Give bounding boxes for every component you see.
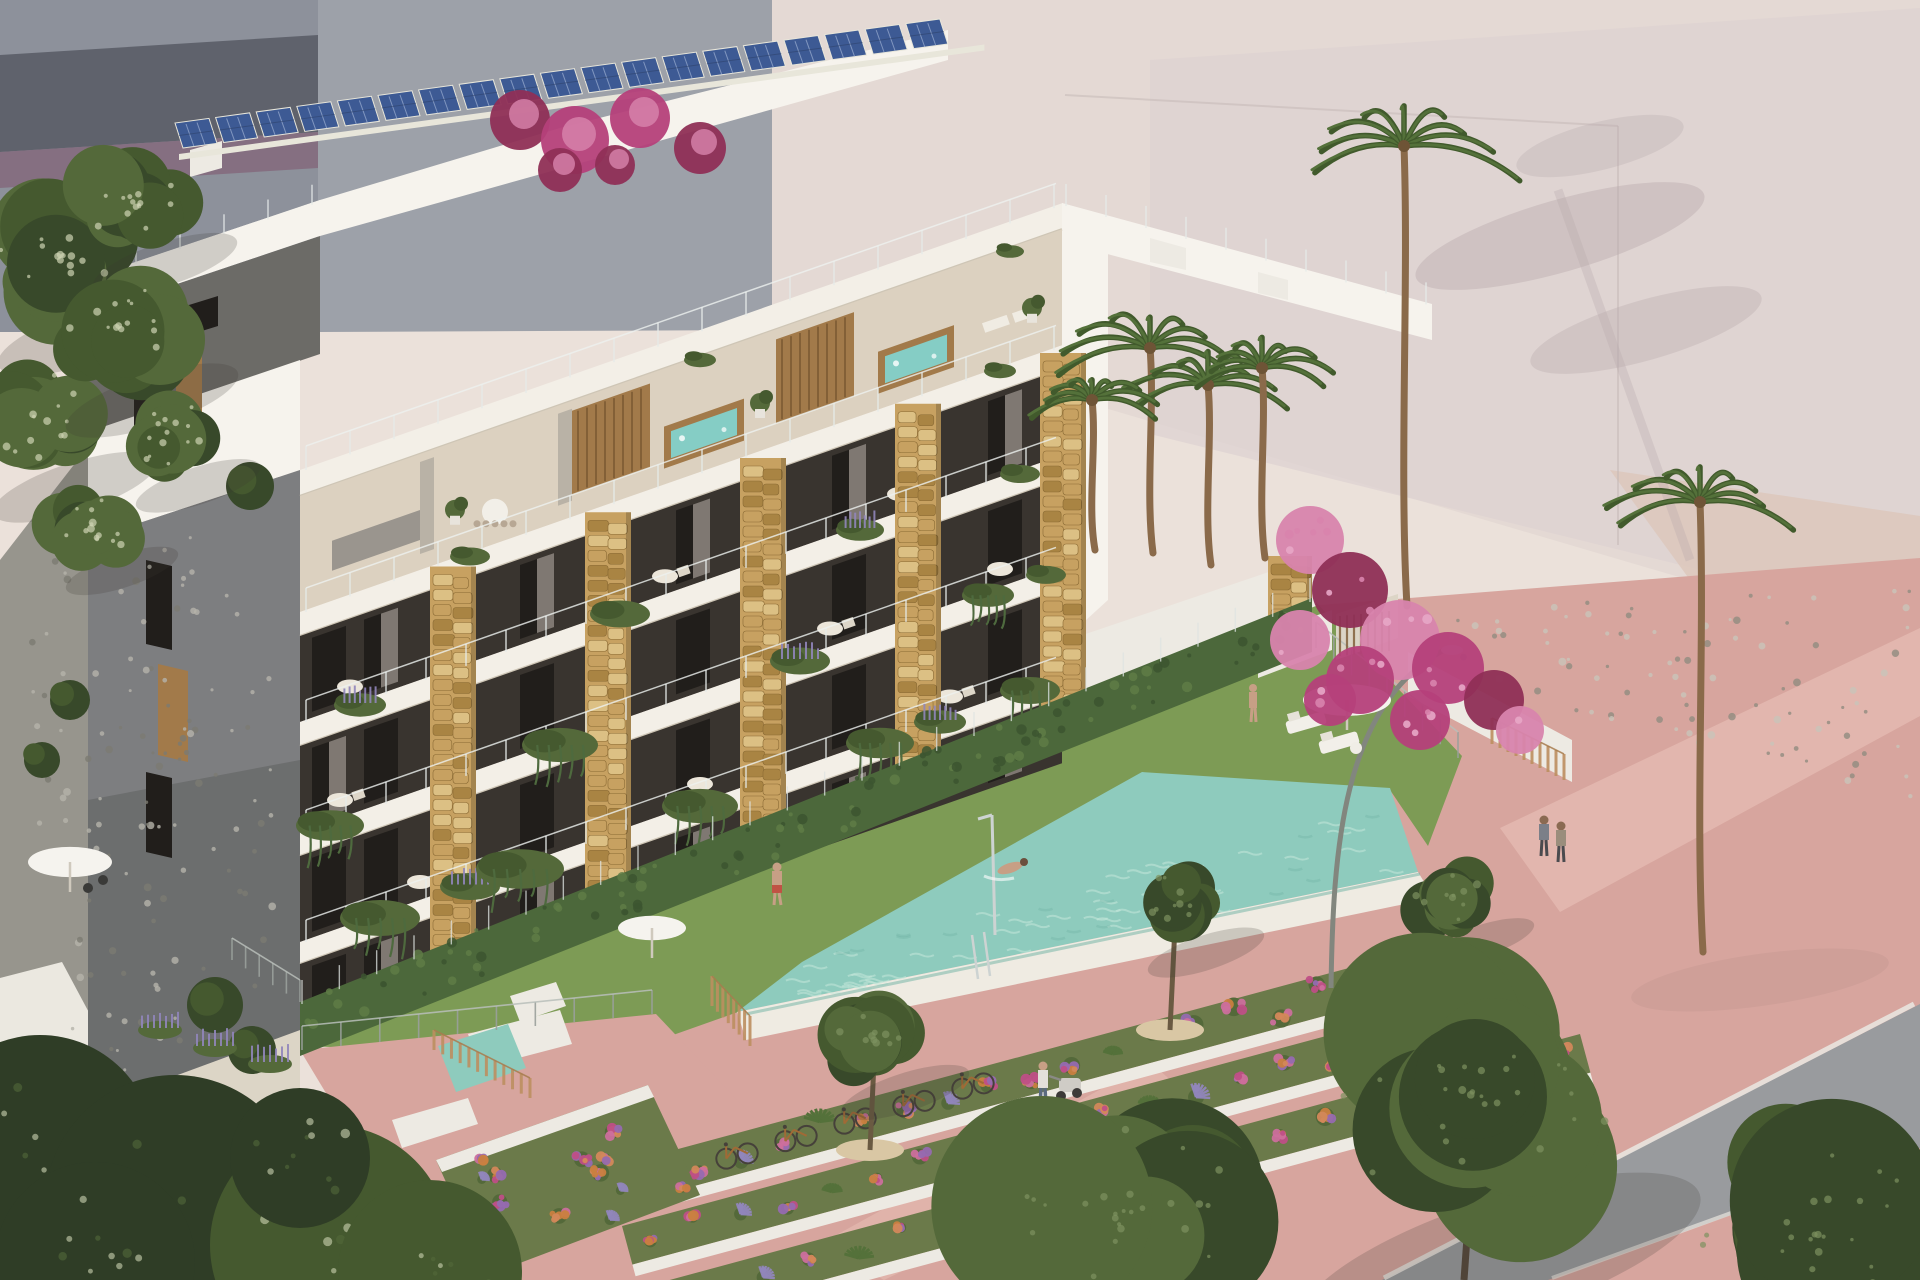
flowers [1319, 985, 1325, 991]
leaf-speckle [431, 1257, 436, 1262]
stone [588, 835, 608, 846]
flowers [788, 1203, 795, 1210]
leaf-speckle [113, 324, 120, 331]
gravel-speckle [141, 619, 146, 624]
gravel-speckle [171, 957, 178, 964]
leaf-speckle [1704, 1233, 1709, 1238]
flowers [1234, 1072, 1242, 1080]
stone [763, 634, 779, 645]
stone [608, 703, 624, 714]
leaf-speckle [13, 449, 17, 453]
leaf-speckle [135, 1254, 142, 1261]
stone [588, 820, 607, 831]
leaf-speckle [148, 455, 151, 458]
leaf-speckle [93, 308, 101, 316]
tree-canopy [137, 426, 180, 469]
stone [763, 679, 782, 690]
hedge-leaf [1252, 643, 1259, 650]
leaf-speckle [438, 1263, 443, 1268]
leaf-speckle [137, 204, 141, 208]
lavender-sprig [948, 1103, 960, 1104]
hedge-leaf [333, 999, 342, 1008]
leaf-speckle [75, 507, 78, 510]
hedge-leaf [1151, 700, 1155, 704]
stone [1063, 649, 1081, 660]
hedge-leaf [1094, 697, 1104, 707]
gravel-speckle [1564, 615, 1568, 619]
gravel-speckle [189, 536, 192, 539]
hedge-leaf [1088, 717, 1093, 722]
gravel-speckle [1794, 746, 1799, 751]
leaf-speckle [285, 1165, 289, 1169]
stone [1063, 559, 1078, 570]
leaf-speckle [860, 1014, 865, 1019]
bougainvillea [1390, 690, 1450, 750]
curtain [693, 499, 710, 579]
bougainvillea-bloom [1366, 607, 1374, 615]
leaf-speckle [13, 1083, 22, 1092]
gravel-speckle [1609, 716, 1614, 721]
leaf-speckle [1181, 1146, 1185, 1150]
stone [1063, 544, 1078, 555]
stone [1063, 664, 1080, 675]
pillar-shade [471, 567, 476, 967]
stone [918, 580, 934, 591]
leaf-speckle [308, 1132, 315, 1139]
bougainvillea-bloom [1369, 659, 1375, 665]
leaf-speckle [1031, 1197, 1036, 1202]
leaf-speckle [22, 1153, 28, 1159]
stone [763, 724, 782, 735]
gravel-speckle [1496, 628, 1502, 634]
stone [763, 694, 782, 705]
gravel-speckle [1686, 730, 1692, 736]
stone [453, 608, 473, 619]
gravel-speckle [1667, 660, 1672, 665]
gravel-speckle [269, 813, 274, 818]
flowers [551, 1216, 558, 1223]
lavender-top [760, 1267, 766, 1273]
stone [1043, 466, 1062, 477]
gravel-speckle [1567, 658, 1570, 661]
stone [433, 725, 454, 736]
gravel-speckle [1543, 629, 1548, 634]
hedge-leaf [448, 949, 454, 955]
gravel-speckle [129, 689, 132, 692]
curtain [849, 444, 866, 524]
hedge-leaf [1039, 737, 1049, 747]
stone [1063, 619, 1083, 630]
stone [433, 845, 454, 856]
tree-canopy [91, 305, 164, 378]
bougainvillea-bloom [1326, 590, 1332, 596]
leaf-speckle [870, 1036, 877, 1043]
stone [453, 848, 469, 859]
hedge-leaf [953, 778, 959, 784]
stone [453, 683, 471, 694]
leaf-speckle [1503, 1066, 1509, 1072]
gravel-speckle [1852, 761, 1859, 768]
leaf-speckle [1810, 1198, 1817, 1205]
stone [453, 743, 472, 754]
gravel-speckle [109, 947, 116, 954]
stone [918, 610, 933, 621]
gravel-speckle [183, 727, 186, 730]
leaf-speckle [419, 1253, 424, 1258]
person-leg [1255, 708, 1256, 722]
leaf-speckle [1869, 1265, 1873, 1269]
leaf-speckle [66, 324, 74, 332]
leaf-speckle [1877, 1169, 1882, 1174]
hedge-leaf [1182, 682, 1192, 692]
stone [608, 733, 628, 744]
hedge-leaf [553, 903, 561, 911]
hedge-leaf [690, 849, 697, 856]
stone [743, 796, 764, 807]
leaf-speckle [1043, 1203, 1046, 1206]
gravel-speckle [1704, 640, 1711, 647]
dining-chair [474, 520, 481, 527]
gravel-speckle [245, 725, 250, 730]
leaf-speckle [1459, 1158, 1466, 1165]
stone [763, 769, 781, 780]
leaf-speckle [1557, 1063, 1560, 1066]
palm-crown [1398, 140, 1410, 152]
curtain [381, 608, 398, 688]
flowers [602, 1156, 611, 1165]
leaf-speckle [887, 1041, 892, 1046]
hedge-leaf [474, 928, 478, 932]
hedge-leaf [855, 776, 859, 780]
gravel-speckle [1754, 703, 1758, 707]
stone [1063, 454, 1079, 465]
hedge-leaf [1063, 699, 1071, 707]
hedge-leaf [382, 982, 387, 987]
stone [433, 905, 453, 916]
leaf-speckle [1450, 873, 1455, 878]
stone [743, 721, 763, 732]
leaf-speckle [68, 252, 76, 260]
flowers [1102, 1106, 1108, 1112]
gravel-speckle [144, 900, 151, 907]
stone [763, 559, 781, 570]
leaf-speckle [190, 405, 194, 409]
gravel-speckle [233, 826, 239, 832]
hedge-leaf [652, 864, 657, 869]
hedge-leaf [1053, 708, 1062, 717]
gravel-speckle [189, 569, 194, 574]
stone [608, 658, 625, 669]
gravel-speckle [1624, 634, 1630, 640]
stone [588, 655, 610, 666]
leaf-speckle [253, 1140, 260, 1147]
leaf-speckle [1444, 893, 1448, 897]
gravel-speckle [187, 730, 194, 737]
gravel-speckle [1574, 708, 1578, 712]
flowers [582, 1158, 587, 1163]
bougainvillea-bloom [609, 149, 629, 169]
stone [608, 688, 624, 699]
gravel-speckle [160, 895, 167, 902]
gravel-speckle [122, 1018, 128, 1024]
gravel-speckle [1850, 687, 1857, 694]
gravel-speckle [1551, 604, 1558, 611]
leaf-speckle [331, 1186, 340, 1195]
leaf-speckle [1808, 1237, 1812, 1241]
leaf-speckle [331, 1268, 336, 1273]
leaf-speckle [1700, 1242, 1706, 1248]
leaf-speckle [172, 420, 179, 427]
hedge-leaf [733, 850, 742, 859]
gravel-speckle [1896, 745, 1899, 748]
leaf-speckle [89, 507, 94, 512]
gravel-speckle [195, 779, 203, 787]
gravel-speckle [1618, 631, 1623, 636]
stone [918, 415, 934, 426]
curtain [1005, 389, 1022, 469]
gravel-speckle [1672, 674, 1678, 680]
gravel-speckle [162, 678, 167, 683]
stone [433, 695, 451, 706]
gravel-speckle [253, 799, 256, 802]
stone [453, 803, 469, 814]
stone [918, 535, 938, 546]
leaf-speckle [32, 1134, 38, 1140]
hedge-leaf [797, 814, 807, 824]
leaf-speckle [1163, 876, 1167, 880]
gravel-speckle [88, 972, 94, 978]
leaf-speckle [1850, 1238, 1853, 1241]
gravel-speckle [1774, 716, 1782, 724]
gravel-speckle [1813, 642, 1819, 648]
gravel-speckle [92, 670, 99, 677]
leaf-speckle [54, 253, 61, 260]
leaf-speckle [1100, 1193, 1107, 1200]
bougainvillea-bloom [1422, 614, 1432, 624]
jacuzzi-foam [722, 427, 727, 432]
hedge-leaf [390, 965, 399, 974]
hedge-leaf [1014, 751, 1024, 761]
leaf-speckle [1181, 1225, 1189, 1233]
gravel-speckle [144, 883, 152, 891]
leaf-speckle [1117, 1225, 1125, 1233]
stone [743, 481, 762, 492]
gravel-speckle [260, 936, 267, 943]
leaf-speckle [1030, 1230, 1035, 1235]
hedge-leaf [617, 872, 627, 882]
gravel-speckle [1689, 716, 1695, 722]
leaf-speckle [152, 412, 156, 416]
hedge-leaf [840, 825, 848, 833]
leaf-speckle [186, 424, 190, 428]
leaf-speckle [135, 191, 141, 197]
leaf-speckle [1480, 1094, 1484, 1098]
gravel-speckle [157, 825, 161, 829]
stone [608, 853, 624, 864]
stone [588, 580, 608, 591]
gravel-speckle [1585, 611, 1591, 617]
stone [1043, 556, 1065, 567]
leaf-speckle [1421, 899, 1428, 906]
leaf-speckle [52, 373, 57, 378]
stone [763, 589, 782, 600]
leaf-speckle [863, 1037, 869, 1043]
gravel-speckle [1844, 777, 1851, 784]
gravel-speckle [242, 890, 248, 896]
lavender-top [1192, 1084, 1200, 1092]
hedge-leaf [1131, 704, 1136, 709]
leaf-speckle [167, 462, 171, 466]
stone [918, 670, 933, 681]
bougainvillea-bloom [1430, 680, 1437, 687]
gravel-speckle [1534, 687, 1541, 694]
gravel-speckle [45, 632, 49, 636]
hedge-leaf [1141, 666, 1152, 677]
stone [743, 691, 764, 702]
leaf-speckle [1783, 1219, 1790, 1226]
bougainvillea-bloom [1427, 667, 1432, 672]
stone [1063, 634, 1082, 645]
hedge-leaf [543, 906, 547, 910]
gravel-speckle [87, 828, 92, 833]
swimmer-head [1020, 858, 1028, 866]
palm-crown [1086, 394, 1098, 406]
stone [1043, 526, 1063, 537]
leaf-speckle [40, 237, 44, 241]
person-leg [1546, 840, 1547, 856]
gravel-speckle [184, 750, 189, 755]
stone [743, 496, 763, 507]
balcony-plant [985, 362, 1003, 372]
flowers [810, 1257, 816, 1263]
stone [588, 685, 607, 696]
balcony-plant [685, 351, 703, 361]
leaf-speckle [1082, 1201, 1088, 1207]
stone [743, 706, 765, 717]
flowers [778, 1204, 789, 1215]
leaf-speckle [108, 1253, 115, 1260]
gravel-speckle [151, 919, 156, 924]
leaf-speckle [1601, 1117, 1609, 1125]
gravel-speckle [1681, 692, 1687, 698]
stone [1063, 439, 1082, 450]
leaf-speckle [168, 201, 174, 207]
hedge-leaf [1130, 685, 1139, 694]
flowers [1311, 986, 1318, 993]
stone [918, 640, 936, 651]
stone [1063, 589, 1082, 600]
flowers [502, 1201, 509, 1208]
stone [743, 571, 763, 582]
gravel-speckle [1605, 631, 1609, 635]
leaf-speckle [341, 1129, 351, 1139]
stone [918, 625, 935, 636]
palm-trunk [1092, 400, 1095, 550]
leaf-speckle [57, 404, 61, 408]
stroller-wheel [1072, 1088, 1082, 1098]
stone [898, 517, 918, 528]
hedge-leaf [326, 988, 333, 995]
bougainvillea-bloom [562, 117, 596, 151]
stone [433, 740, 452, 751]
leaf-speckle [1167, 1200, 1174, 1207]
person-torso [1556, 830, 1566, 846]
hedge-leaf [734, 870, 739, 875]
gravel-speckle [1594, 675, 1600, 681]
gravel-speckle [1683, 630, 1687, 634]
leaf-speckle [83, 528, 88, 533]
stone [588, 535, 610, 546]
stone [898, 667, 920, 678]
leaf-speckle [1443, 1087, 1447, 1091]
leaf-speckle [1176, 888, 1184, 896]
leaf-speckle [195, 437, 203, 445]
leaf-speckle [1440, 1124, 1446, 1130]
leaf-speckle [43, 417, 51, 425]
stone [743, 526, 764, 537]
gravel-speckle [1733, 635, 1738, 640]
leaf-speckle [1, 1111, 7, 1117]
stone [453, 698, 471, 709]
person-leg [1563, 846, 1564, 862]
gravel-speckle [145, 801, 148, 804]
bougainvillea-bloom [1279, 650, 1284, 655]
leaf-speckle [1830, 1153, 1834, 1157]
leaf-speckle [1025, 1194, 1030, 1199]
leaf-speckle [1482, 1101, 1488, 1107]
hedge-leaf [466, 950, 472, 956]
gravel-speckle [225, 594, 229, 598]
stone [1291, 582, 1306, 593]
gravel-speckle [210, 688, 213, 691]
gravel-speckle [190, 608, 196, 614]
gravel-speckle [1624, 690, 1630, 696]
leaf-speckle [127, 299, 130, 302]
leaf-speckle [107, 326, 110, 329]
stone [1063, 679, 1081, 690]
balcony-window [520, 773, 554, 859]
bougainvillea-bloom [1377, 661, 1384, 668]
gravel-speckle [87, 898, 91, 902]
stone [433, 575, 453, 586]
stone [1063, 514, 1082, 525]
flowers [499, 1194, 505, 1200]
stone [898, 622, 918, 633]
stone [918, 445, 937, 456]
lavender-sprig [763, 1277, 775, 1278]
stone [433, 590, 453, 601]
bougainvillea-bloom [1317, 687, 1325, 695]
leaf-speckle [1188, 903, 1193, 908]
stone [588, 520, 608, 531]
leaf-speckle [1126, 1191, 1133, 1198]
gravel-speckle [100, 731, 105, 736]
stone [433, 605, 451, 616]
gravel-speckle [1656, 716, 1663, 723]
gravel-speckle [29, 639, 36, 646]
gravel-speckle [1684, 657, 1691, 664]
person-leg [1251, 708, 1252, 722]
hedge-leaf [633, 903, 643, 913]
leaf-speckle [1815, 1248, 1823, 1256]
gravel-speckle [1811, 595, 1816, 600]
leaf-speckle [116, 1263, 122, 1269]
leaf-speckle [1129, 1210, 1134, 1215]
bougainvillea-bloom [1403, 720, 1411, 728]
stone [433, 665, 453, 676]
flowers [682, 1184, 691, 1193]
gravel-speckle [252, 849, 257, 854]
